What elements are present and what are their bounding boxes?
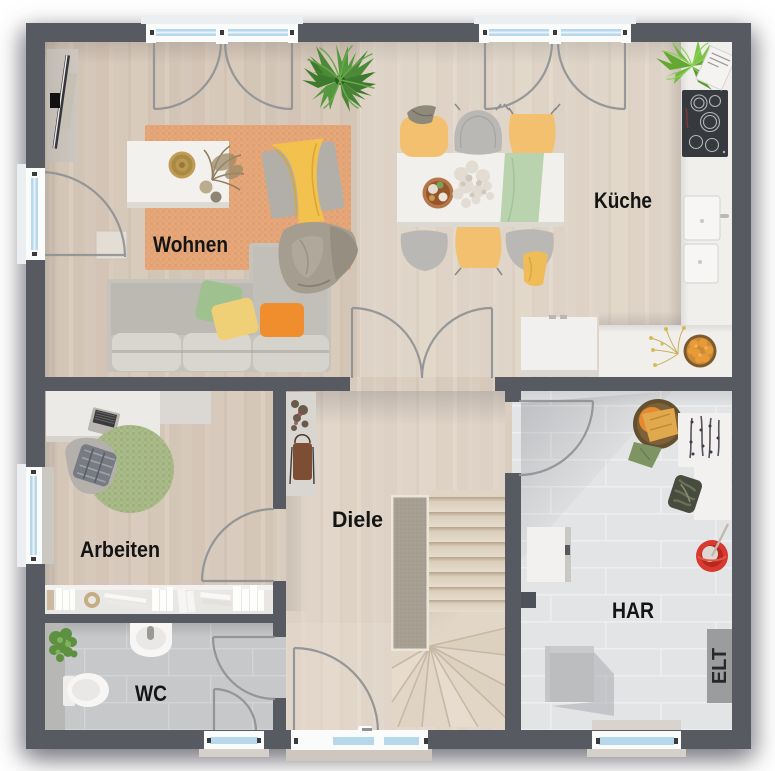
svg-text:ELT: ELT	[709, 648, 731, 684]
svg-text:WC: WC	[135, 681, 167, 706]
svg-text:Wohnen: Wohnen	[153, 232, 228, 257]
svg-text:Arbeiten: Arbeiten	[80, 537, 160, 562]
svg-text:Diele: Diele	[332, 507, 383, 532]
svg-text:Küche: Küche	[594, 188, 652, 213]
svg-text:HAR: HAR	[612, 598, 654, 623]
